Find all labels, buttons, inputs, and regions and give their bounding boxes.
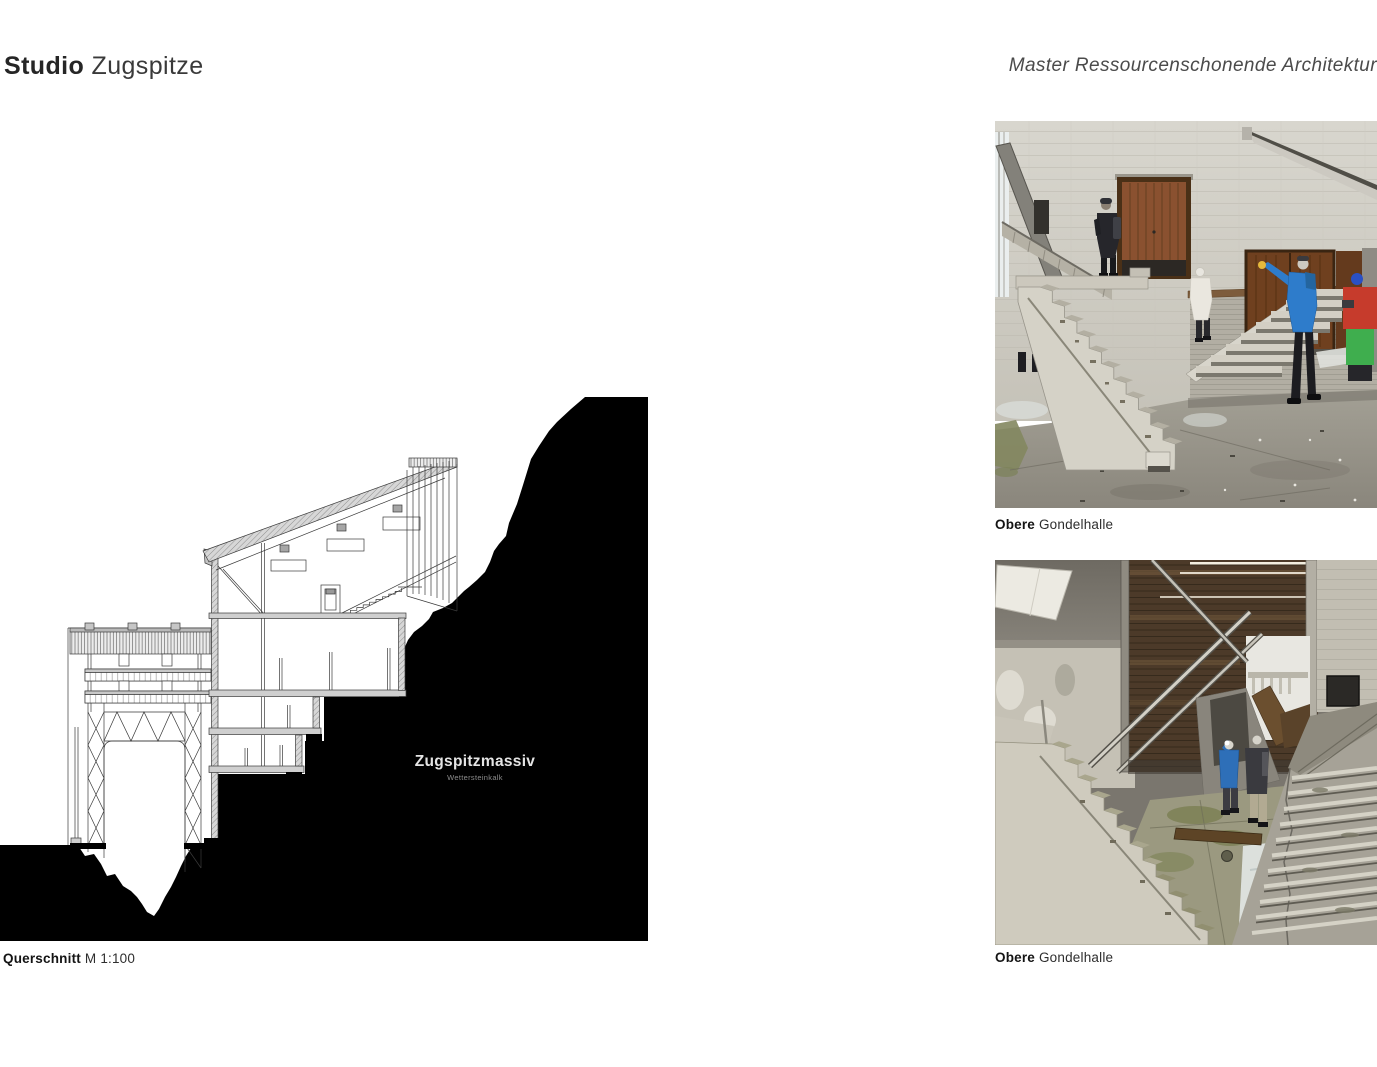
photo-1 (995, 121, 1377, 508)
steel-column-left (1121, 560, 1129, 772)
massif-label: Zugspitzmassiv (415, 753, 536, 770)
massif-sublabel: Wettersteinkalk (447, 773, 503, 782)
person-red-jacket (1342, 273, 1377, 381)
photo2-caption-bold: Obere (995, 950, 1035, 965)
wooden-door-left (1115, 174, 1193, 279)
photo-upper-gondelhalle-2 (995, 560, 1377, 945)
drawing-caption-rest: M 1:100 (81, 951, 135, 966)
photo1-caption: Obere Gondelhalle (995, 517, 1113, 532)
photo-2 (995, 560, 1377, 945)
wall-niche (1034, 200, 1049, 234)
page-title-bold: Studio (4, 52, 84, 80)
right-concrete-wall (1317, 560, 1377, 712)
photo1-caption-rest: Gondelhalle (1035, 517, 1113, 532)
course-title: Master Ressourcenschonende Architektur (1009, 55, 1377, 77)
section-drawing: Zugspitzmassiv Wettersteinkalk (0, 390, 650, 945)
drawing-caption: Querschnitt M 1:100 (3, 951, 135, 966)
page-title-light: Zugspitze (84, 52, 203, 80)
photo2-caption-rest: Gondelhalle (1035, 950, 1113, 965)
photo2-caption: Obere Gondelhalle (995, 950, 1113, 965)
drawing-caption-bold: Querschnitt (3, 951, 81, 966)
section-drawing-figure: Zugspitzmassiv Wettersteinkalk (0, 390, 650, 945)
page-title: Studio Zugspitze (4, 52, 204, 81)
photo-upper-gondelhalle-1 (995, 121, 1377, 508)
photo1-caption-bold: Obere (995, 517, 1035, 532)
